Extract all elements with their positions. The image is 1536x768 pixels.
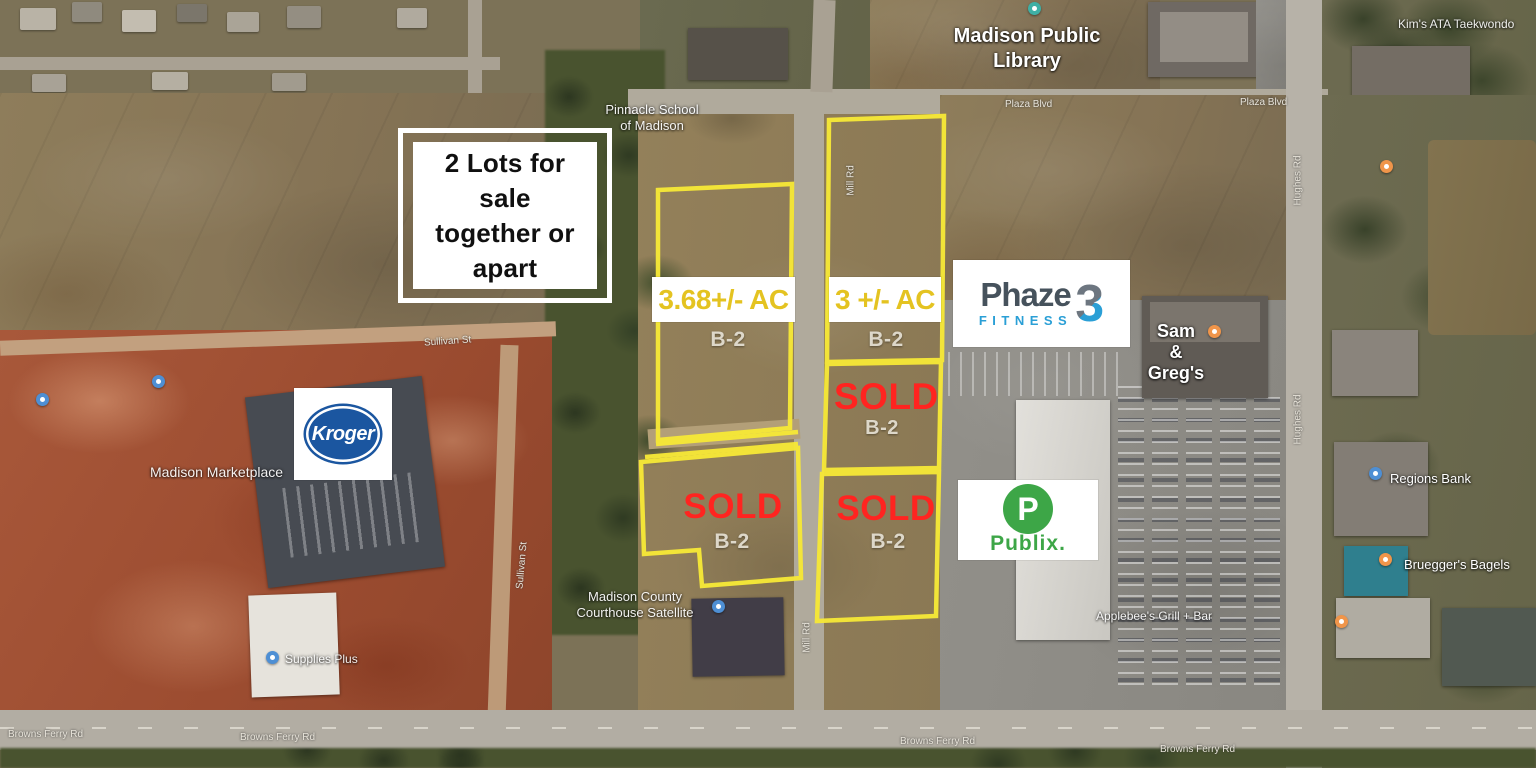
restaurant-pin-icon [1380,160,1393,173]
phaze3-fitness-text: FITNESS [979,313,1072,328]
label-sam: Sam [1145,321,1207,342]
label-library-line1: Madison Public [952,24,1102,49]
sold-lower-right-label: SOLD [834,489,938,529]
label-school: Pinnacle School of Madison [582,102,722,134]
road-label-browns-ferry: Browns Ferry Rd [900,736,975,747]
sold-lower-right-zoning-label: B-2 [860,530,916,554]
lot-b-acreage-label: 3 +/- AC [829,277,941,322]
label-sam-gregs: Sam & Greg's [1145,321,1207,384]
road-label-plaza: Plaza Blvd [1240,97,1287,108]
label-brueggers: Bruegger's Bagels [1404,557,1510,572]
regions-pin-icon [1369,467,1382,480]
phaze3-logo-box: Phaze FITNESS 3 [953,260,1130,347]
road-label-hughes: Hughes Rd [1293,385,1304,455]
place-pin-icon [36,393,49,406]
publix-logo-initial: P [1017,491,1038,528]
label-courthouse-line1: Madison County [560,589,710,605]
sale-note-line: together or [413,216,597,251]
brueggers-pin-icon [1379,553,1392,566]
label-regions-bank: Regions Bank [1390,471,1471,486]
kroger-logo-box: Kroger [294,388,392,480]
road-label-mill: Mill Rd [802,603,813,673]
publix-logo-text: Publix. [990,532,1066,556]
supplies-pin-icon [266,651,279,664]
lot-outlines [0,0,1536,768]
sold-upper-zoning-label: B-2 [854,417,910,440]
kroger-logo: Kroger [306,406,380,462]
lot-a-acreage-label: 3.68+/- AC [652,277,795,322]
label-gregs: Greg's [1145,363,1207,384]
label-applebees: Applebee's Grill + Bar [1096,609,1212,623]
publix-logo-circle: P [1003,484,1053,534]
road-label-plaza: Plaza Blvd [1005,99,1052,110]
sale-note-line: apart [413,251,597,286]
label-courthouse: Madison County Courthouse Satellite [560,589,710,621]
label-library-line2: Library [952,49,1102,74]
restaurant-pin-icon [1208,325,1221,338]
library-pin-icon [1028,2,1041,15]
label-library: Madison Public Library [952,24,1102,74]
sale-note-line: sale [413,181,597,216]
sold-upper-label: SOLD [834,376,938,418]
road-label-mill: Mill Rd [846,146,857,216]
label-marketplace: Madison Marketplace [150,464,283,480]
lot-b-zoning-label: B-2 [858,328,914,352]
phaze3-wordmark: Phaze [980,280,1070,310]
aerial-map: 2 Lots for sale together or apart 3.68+/… [0,0,1536,768]
label-courthouse-line2: Courthouse Satellite [560,605,710,621]
road-label-browns-ferry: Browns Ferry Rd [8,729,83,740]
kroger-logo-text: Kroger [312,423,375,446]
road-label-hughes: Hughes Rd [1293,146,1304,216]
sold-lower-left-zoning-label: B-2 [704,530,760,554]
label-ampersand: & [1145,342,1207,363]
label-school-line2: of Madison [582,118,722,134]
label-taekwondo: Kim's ATA Taekwondo [1398,17,1514,31]
sale-note-text: 2 Lots for sale together or apart [413,142,597,289]
publix-logo-box: P Publix. [958,480,1098,560]
courthouse-pin-icon [712,600,725,613]
sale-note-box: 2 Lots for sale together or apart [398,128,612,303]
phaze3-logo: Phaze FITNESS 3 [953,260,1130,347]
sale-note-line: 2 Lots for [413,146,597,181]
label-supplies-plus: Supplies Plus [285,652,358,666]
lot-a-zoning-label: B-2 [700,328,756,352]
phaze3-digit: 3 [1075,282,1104,326]
place-pin-icon [152,375,165,388]
restaurant-pin-icon [1335,615,1348,628]
label-school-line1: Pinnacle School [582,102,722,118]
road-label-browns-ferry: Browns Ferry Rd [240,732,315,743]
road-label-browns-ferry: Browns Ferry Rd [1160,744,1235,755]
sold-lower-left-label: SOLD [678,487,788,527]
